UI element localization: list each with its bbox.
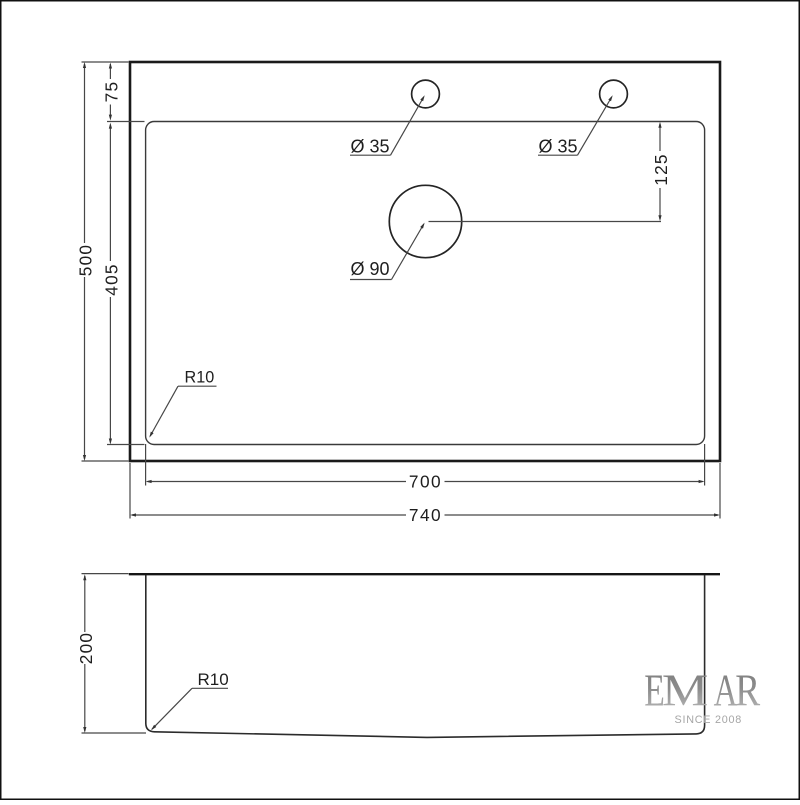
svg-text:A: A xyxy=(714,666,738,716)
svg-text:Ø 35: Ø 35 xyxy=(539,136,578,156)
svg-text:Ø 90: Ø 90 xyxy=(351,259,390,279)
svg-text:Ø 35: Ø 35 xyxy=(351,136,390,156)
svg-text:740: 740 xyxy=(409,505,442,525)
svg-text:75: 75 xyxy=(101,81,121,103)
svg-text:SINCE 2008: SINCE 2008 xyxy=(675,714,743,726)
svg-text:500: 500 xyxy=(76,244,96,276)
svg-text:R10: R10 xyxy=(185,369,215,387)
svg-text:700: 700 xyxy=(409,471,442,491)
svg-text:200: 200 xyxy=(76,632,96,664)
svg-text:R: R xyxy=(735,665,760,715)
svg-text:405: 405 xyxy=(101,263,121,295)
svg-text:M: M xyxy=(662,666,708,716)
svg-text:R10: R10 xyxy=(198,670,229,689)
svg-text:125: 125 xyxy=(651,153,671,185)
